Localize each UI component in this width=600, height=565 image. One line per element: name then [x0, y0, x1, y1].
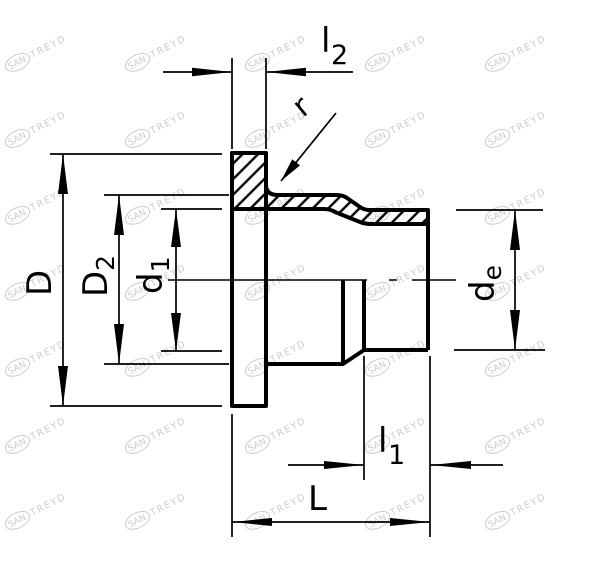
arrow-D2-top — [114, 195, 124, 235]
watermark-text-primary: SAN — [487, 55, 508, 72]
watermark-text-secondary: TREYD — [268, 262, 309, 290]
watermark-text-primary: SAN — [367, 131, 388, 148]
watermark-text-primary: SAN — [487, 360, 508, 377]
watermark: SANTREYD — [3, 31, 70, 75]
arrow-l1-left — [324, 461, 364, 469]
watermark: SANTREYD — [483, 489, 550, 533]
watermark-text-secondary: TREYD — [508, 109, 549, 137]
watermark-text-primary: SAN — [247, 131, 268, 148]
watermark-text-primary: SAN — [127, 131, 148, 148]
label-D2: D2 — [76, 255, 120, 297]
watermark-text-secondary: TREYD — [28, 491, 69, 519]
watermark: SANTREYD — [123, 489, 190, 533]
arrow-D-bottom — [58, 366, 68, 406]
label-d1-sub: 1 — [146, 257, 175, 273]
watermark-text-secondary: TREYD — [148, 415, 189, 443]
watermark: SANTREYD — [363, 107, 430, 151]
label-L: L — [308, 479, 327, 519]
watermark-text-secondary: TREYD — [148, 33, 189, 61]
watermark: SANTREYD — [363, 489, 430, 533]
watermark-text-secondary: TREYD — [508, 415, 549, 443]
arrow-l1-right — [431, 461, 471, 469]
technical-drawing-canvas: SANTREYDSANTREYDSANTREYDSANTREYDSANTREYD… — [0, 0, 600, 565]
label-l2-main: l — [321, 21, 330, 61]
label-D2-main: D — [76, 271, 116, 297]
watermark-text-secondary: TREYD — [388, 338, 429, 366]
label-de: de — [463, 265, 507, 302]
watermark: SANTREYD — [363, 31, 430, 75]
watermark-text-secondary: TREYD — [388, 33, 429, 61]
watermark: SANTREYD — [483, 413, 550, 457]
watermark-text-primary: SAN — [367, 284, 388, 301]
watermark-text-secondary: TREYD — [268, 491, 309, 519]
watermark-text-primary: SAN — [367, 55, 388, 72]
label-l2-sub: 2 — [331, 40, 348, 71]
watermark-text-primary: SAN — [7, 513, 28, 530]
watermark: SANTREYD — [483, 31, 550, 75]
watermark: SANTREYD — [123, 184, 190, 228]
watermark: SANTREYD — [123, 336, 190, 380]
arrow-r-leader — [281, 159, 300, 181]
watermark-text-primary: SAN — [127, 437, 148, 454]
watermark-text-primary: SAN — [247, 437, 268, 454]
watermark-text-secondary: TREYD — [268, 33, 309, 61]
watermark-text-secondary: TREYD — [148, 491, 189, 519]
watermark-text-primary: SAN — [487, 131, 508, 148]
watermark-text-secondary: TREYD — [508, 338, 549, 366]
watermark-text-secondary: TREYD — [388, 491, 429, 519]
drawing-svg: SANTREYDSANTREYDSANTREYDSANTREYDSANTREYD… — [0, 0, 600, 565]
arrow-de-top — [510, 210, 520, 250]
watermark: SANTREYD — [363, 336, 430, 380]
watermark: SANTREYD — [243, 336, 310, 380]
label-l1-main: l — [378, 421, 387, 461]
label-D2-sub: 2 — [91, 255, 120, 271]
arrow-l2-left — [192, 68, 232, 76]
watermark: SANTREYD — [123, 107, 190, 151]
watermark-text-primary: SAN — [7, 437, 28, 454]
label-D: D — [20, 270, 60, 296]
arrow-l2-right — [266, 68, 306, 76]
watermark-text-primary: SAN — [367, 360, 388, 377]
watermark-text-secondary: TREYD — [268, 415, 309, 443]
watermark: SANTREYD — [363, 260, 430, 304]
watermark-text-primary: SAN — [7, 208, 28, 225]
watermark: SANTREYD — [243, 260, 310, 304]
watermark: SANTREYD — [3, 413, 70, 457]
watermark: SANTREYD — [483, 107, 550, 151]
watermark-text-primary: SAN — [127, 360, 148, 377]
arrow-L-right — [390, 518, 430, 526]
watermark-text-primary: SAN — [487, 513, 508, 530]
arrow-D2-bottom — [114, 324, 124, 364]
watermark-text-primary: SAN — [127, 208, 148, 225]
watermark-text-secondary: TREYD — [28, 415, 69, 443]
watermark-text-secondary: TREYD — [508, 262, 549, 290]
watermark-text-primary: SAN — [7, 55, 28, 72]
watermark: SANTREYD — [123, 413, 190, 457]
watermark-text-secondary: TREYD — [148, 186, 189, 214]
label-d1-main: d — [131, 272, 171, 294]
watermark-text-primary: SAN — [127, 513, 148, 530]
watermark: SANTREYD — [3, 107, 70, 151]
label-l2: l 2 — [321, 21, 348, 71]
watermark-text-secondary: TREYD — [388, 262, 429, 290]
watermark: SANTREYD — [3, 489, 70, 533]
arrow-d1-top — [171, 209, 181, 247]
watermark-text-primary: SAN — [487, 437, 508, 454]
label-l1-sub: 1 — [388, 440, 405, 471]
watermark-text-secondary: TREYD — [508, 491, 549, 519]
label-de-sub: e — [478, 265, 507, 280]
arrow-D-top — [58, 154, 68, 194]
arrow-de-bottom — [510, 310, 520, 350]
watermark: SANTREYD — [243, 413, 310, 457]
watermark: SANTREYD — [243, 31, 310, 75]
label-de-main: d — [463, 280, 503, 302]
label-d1: d1 — [131, 257, 175, 295]
watermark-text-primary: SAN — [7, 131, 28, 148]
watermark-text-secondary: TREYD — [148, 109, 189, 137]
watermark-text-secondary: TREYD — [148, 338, 189, 366]
watermark-text-secondary: TREYD — [28, 109, 69, 137]
watermark-text-secondary: TREYD — [28, 33, 69, 61]
watermark: SANTREYD — [123, 31, 190, 75]
watermark-text-primary: SAN — [247, 55, 268, 72]
watermark-text-primary: SAN — [127, 55, 148, 72]
watermark-text-primary: SAN — [7, 360, 28, 377]
watermark-text-secondary: TREYD — [508, 33, 549, 61]
watermark-text-secondary: TREYD — [388, 109, 429, 137]
watermark: SANTREYD — [243, 489, 310, 533]
